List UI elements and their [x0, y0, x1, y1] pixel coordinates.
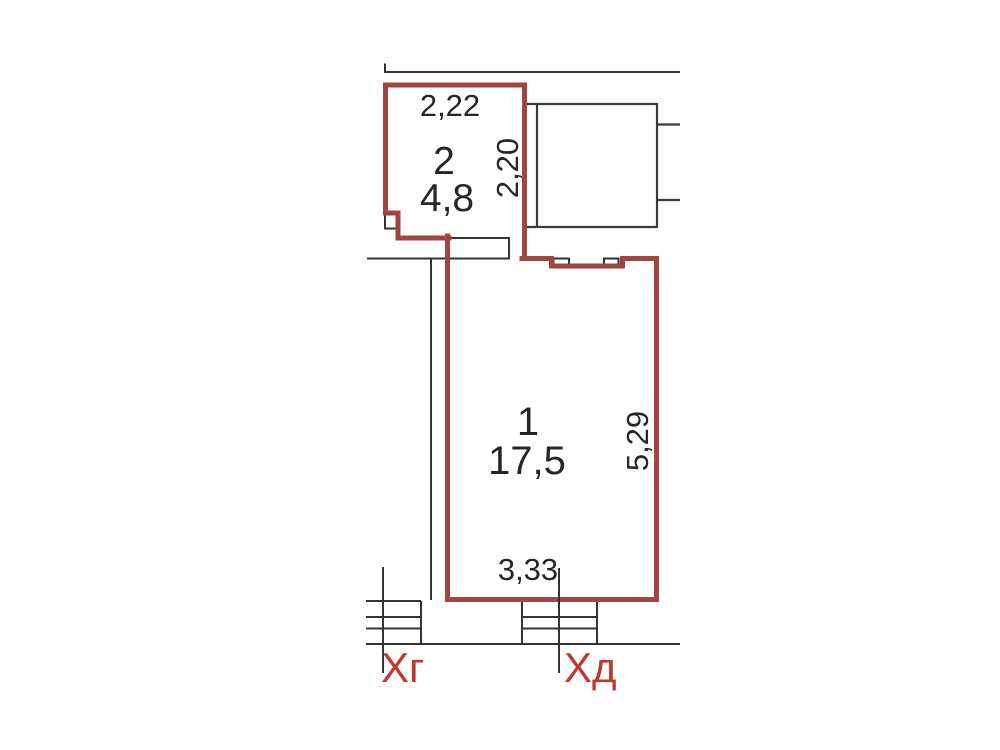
svg-text:Хг: Хг: [381, 644, 424, 691]
svg-text:5,29: 5,29: [620, 411, 655, 471]
svg-text:1: 1: [517, 400, 539, 444]
svg-text:2,20: 2,20: [490, 138, 525, 198]
svg-text:4,8: 4,8: [420, 177, 474, 220]
svg-text:17,5: 17,5: [488, 439, 566, 483]
svg-text:2,22: 2,22: [420, 88, 480, 123]
svg-text:Хд: Хд: [564, 644, 617, 691]
svg-text:3,33: 3,33: [498, 552, 558, 587]
